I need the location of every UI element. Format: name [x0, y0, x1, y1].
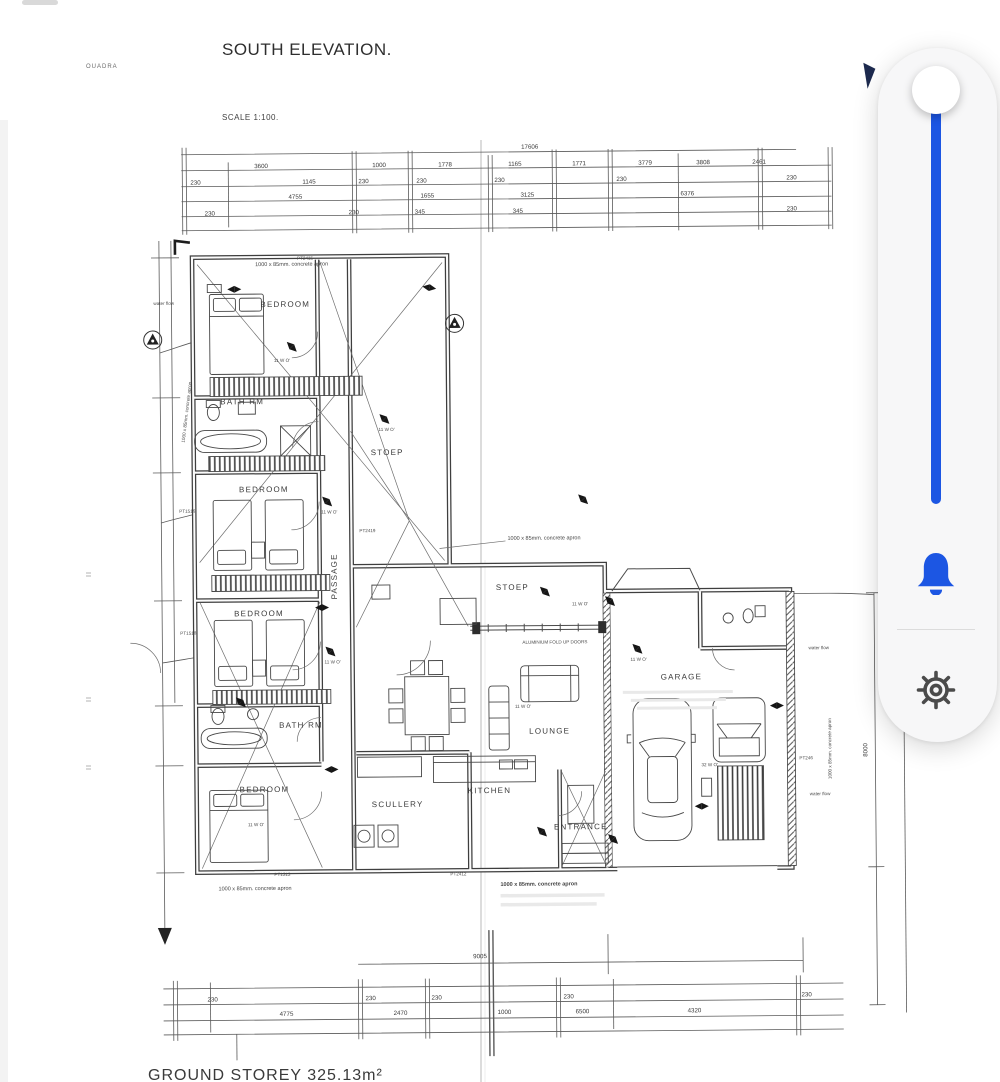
top-dimension-lines: 17606 3600 1000 1778 1165 1771 3779 3808… — [181, 141, 833, 235]
panel-divider — [897, 629, 975, 630]
dim: 230 — [801, 991, 812, 998]
slider-thumb[interactable] — [912, 66, 960, 114]
pt-label: PT2419 — [359, 528, 376, 533]
notifications-button[interactable] — [912, 548, 960, 596]
note-fold-doors: ALUMINIUM FOLD UP DOORS — [522, 639, 587, 645]
room-label-stoep-lower: STOEP — [496, 583, 529, 592]
note-apron-bottom-left: 1000 x 85mm. concrete apron — [218, 886, 291, 893]
note-water-flow: water flow — [808, 645, 829, 650]
pt-label: PT1516 — [179, 509, 196, 514]
pt-label: PT246 — [799, 755, 813, 760]
note-apron-garage: 1000 x 85mm. concrete apron — [827, 718, 833, 780]
room-label-bedroom-4: BEDROOM — [240, 785, 290, 794]
window-mark: 11 W O' — [515, 704, 531, 709]
pt-label: PT2412 — [450, 871, 467, 876]
room-label-bath-1: BATH RM — [220, 397, 264, 406]
note-water-flow: water flow — [153, 301, 174, 306]
dim: 1000 — [372, 162, 386, 169]
dim: 230 — [416, 178, 427, 185]
room-label-bedroom-1: BEDROOM — [260, 300, 310, 309]
window-mark: 11 W O' — [572, 601, 588, 606]
floor-plan-document: SOUTH ELEVATION. OUADRA SCALE 1:100. GRO… — [0, 0, 1000, 1082]
pt-label: PT1313 — [274, 872, 291, 877]
room-label-scullery: SCULLERY — [372, 800, 424, 809]
room-label-entrance: ENTRANCE — [554, 822, 608, 831]
gear-icon — [913, 667, 959, 713]
dim: 230 — [358, 178, 369, 185]
window-mark: 11 W O' — [631, 657, 647, 662]
dim: 230 — [349, 209, 360, 216]
dim: 3600 — [254, 163, 268, 170]
window-mark: 11 W O' — [248, 822, 264, 827]
dim: 230 — [787, 205, 798, 212]
window-mark: 11 W O' — [274, 358, 290, 363]
dim: 6376 — [680, 190, 694, 197]
dim: 1778 — [438, 161, 452, 168]
note-apron-left: 1000 x 85mm. concrete apron — [181, 381, 193, 443]
dim: 230 — [190, 180, 201, 187]
watermark: OUADRA — [86, 64, 118, 70]
floor-plan-drawing: SOUTH ELEVATION. OUADRA SCALE 1:100. GRO… — [0, 0, 1000, 1082]
note-apron-bottom-right: 1000 x 85mm. concrete apron — [500, 881, 578, 888]
walls — [175, 235, 797, 876]
dim: 4775 — [280, 1011, 294, 1018]
dim: 230 — [563, 993, 574, 1000]
dim: 3808 — [696, 159, 710, 166]
dim: 4755 — [288, 194, 302, 201]
room-label-garage: GARAGE — [661, 672, 703, 681]
window-mark: 11 W O' — [321, 509, 337, 514]
dim: 3779 — [638, 160, 652, 167]
screen: SOUTH ELEVATION. OUADRA SCALE 1:100. GRO… — [0, 0, 1000, 1082]
room-label-bedroom-3: BEDROOM — [234, 609, 284, 618]
room-label-passage: PASSAGE — [330, 553, 339, 599]
dim: 6500 — [576, 1008, 590, 1015]
dim: 4320 — [688, 1007, 702, 1014]
window-mark: 11 W O' — [325, 659, 341, 664]
dim: 230 — [205, 210, 216, 217]
note-water-flow: water flow — [810, 791, 831, 796]
room-label-bedroom-2: BEDROOM — [239, 485, 289, 494]
pt-label: PT2415 — [297, 256, 314, 261]
dim-top-total: 17606 — [521, 144, 539, 151]
room-label-kitchen: KITCHEN — [468, 786, 512, 795]
note-apron-top: 1000 x 85mm. concrete apron — [255, 261, 328, 268]
dim: 1145 — [302, 179, 316, 186]
dim: 230 — [365, 995, 376, 1002]
room-label-lounge: LOUNGE — [529, 726, 570, 735]
window-mark-garage: 32 W O' — [701, 762, 718, 767]
room-label-stoep-upper: STOEP — [371, 448, 404, 457]
scale-note: SCALE 1:100. — [222, 113, 279, 122]
dim: 230 — [616, 176, 627, 183]
dim: 1655 — [420, 193, 434, 200]
dim: 1165 — [508, 161, 522, 168]
dim: 2461 — [752, 159, 766, 166]
plan-footer-title: GROUND STOREY 325.13m² — [148, 1067, 383, 1082]
room-label-bath-2: BATH RM — [279, 721, 323, 730]
dim: 230 — [431, 995, 442, 1002]
dim: 345 — [513, 208, 524, 215]
dim-bottom-span: 9005 — [473, 953, 487, 960]
dim: 1771 — [572, 160, 586, 167]
slider-track[interactable] — [931, 106, 941, 504]
page-title: SOUTH ELEVATION. — [222, 40, 392, 59]
dim: 230 — [207, 996, 218, 1003]
bell-icon — [913, 549, 959, 595]
dim-right-height: 8000 — [862, 742, 869, 756]
dim: 345 — [415, 209, 426, 216]
dim: 2470 — [394, 1010, 408, 1017]
bottom-dimension-lines: 9005 230 230 230 230 230 4775 2470 1000 … — [163, 927, 844, 1061]
note-apron-mid: 1000 x 85mm. concrete apron — [507, 535, 580, 542]
dim: 230 — [494, 177, 505, 184]
settings-button[interactable] — [912, 666, 960, 714]
dim: 230 — [786, 174, 797, 181]
pt-label: PT1518 — [180, 631, 197, 636]
dim: 1000 — [498, 1009, 512, 1016]
window-mark: 11 W O' — [378, 427, 394, 432]
dim: 3125 — [520, 192, 534, 199]
